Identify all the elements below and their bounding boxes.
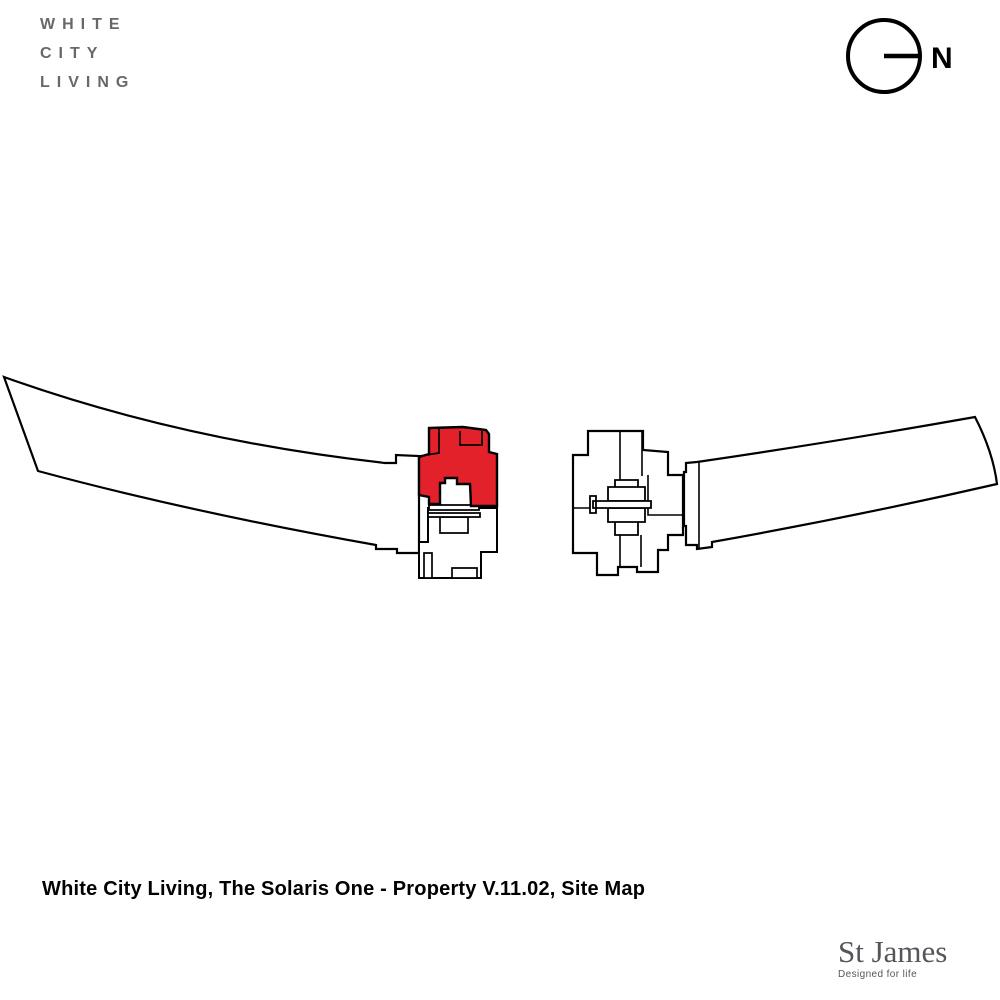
solaris-one-highlight [419, 427, 497, 506]
developer-name: St James [838, 936, 947, 968]
site-map-svg [0, 0, 1000, 1000]
developer-tagline: Designed for life [838, 969, 947, 980]
west-curved-block [4, 377, 419, 553]
east-curved-block [684, 417, 997, 549]
page-caption: White City Living, The Solaris One - Pro… [42, 876, 645, 902]
developer-logo: St James Designed for life [838, 936, 947, 980]
